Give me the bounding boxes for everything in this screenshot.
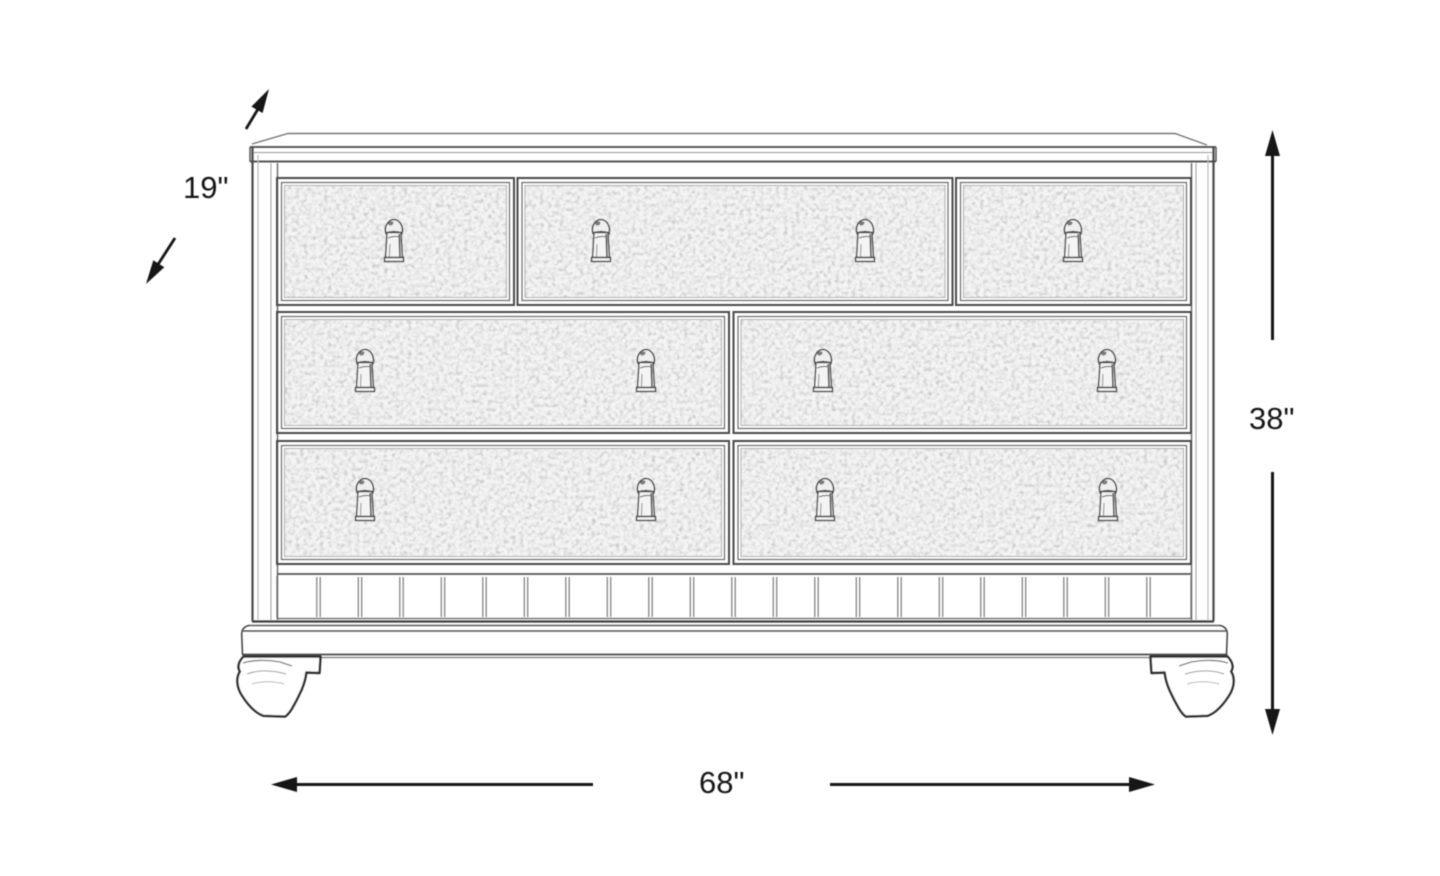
svg-text:19": 19" — [183, 170, 229, 205]
svg-text:68": 68" — [699, 765, 745, 800]
svg-text:38": 38" — [1249, 401, 1295, 436]
